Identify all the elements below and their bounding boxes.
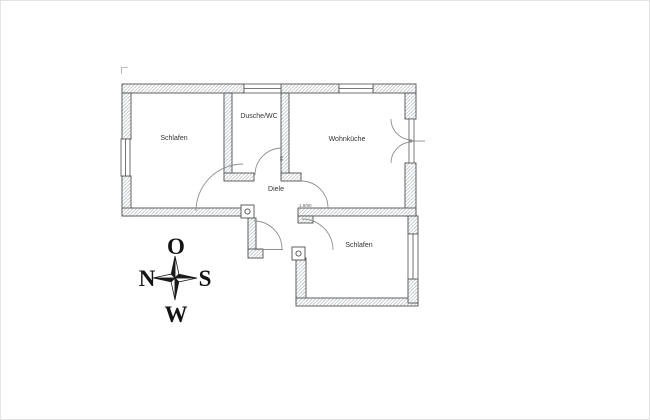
window-left [121, 139, 130, 176]
wall-middle-horizontal [298, 208, 416, 216]
compass-letter-east: O [167, 234, 185, 259]
room-label-hallway: Diele [268, 186, 284, 193]
wall-top-right [373, 84, 416, 93]
compass-letter-south: S [199, 266, 212, 291]
hinge-symbol-bedroom2 [292, 247, 305, 260]
floor-plan-page: 1.9/90 90 Schlafen Dusche/WC Wohnküche D… [0, 0, 650, 420]
door-arc-entrance [254, 221, 282, 249]
corner-tick-mark [122, 68, 129, 75]
wall-bedroom2-left [296, 258, 306, 302]
room-label-shower-wc: Dusche/WC [240, 113, 277, 120]
wall-bedroom1-bottom [122, 208, 249, 216]
wall-bedroom2-right-upper [408, 216, 418, 234]
wall-shower-bottom-right-stub [281, 173, 301, 181]
door-arc-bedroom2 [302, 219, 333, 250]
dimension-label-horizontal: 1.9/90 [299, 203, 312, 208]
wall-shower-left [224, 93, 232, 174]
wall-top-middle [281, 84, 339, 93]
wall-bedroom2-right-lower [408, 279, 418, 303]
door-arc-shower-wc [255, 148, 282, 175]
window-bedroom2-right [408, 234, 418, 279]
compass-letter-north: N [139, 266, 156, 291]
floor-plan-drawing: 1.9/90 90 Schlafen Dusche/WC Wohnküche D… [1, 1, 650, 420]
compass-star-icon [153, 256, 197, 300]
hinge-symbol-entrance [241, 205, 254, 218]
wall-right-upper [405, 93, 416, 119]
compass-rose: O N S W [139, 234, 212, 327]
compass-letter-west: W [165, 302, 188, 327]
balcony-double-door [391, 119, 425, 163]
window-top-kitchen [339, 84, 373, 93]
room-label-living-kitchen: Wohnküche [329, 136, 366, 143]
wall-top-left [122, 84, 244, 93]
door-arcs [196, 148, 333, 250]
door-arc-bedroom1 [196, 164, 243, 211]
wall-left-upper [122, 93, 131, 139]
room-label-bedroom-1: Schlafen [160, 135, 187, 142]
window-top-shower [244, 84, 281, 93]
wall-shower-bottom-left-stub [224, 173, 254, 181]
wall-vestibule-bottom [248, 249, 263, 258]
wall-vestibule-left [248, 218, 256, 251]
room-label-bedroom-2: Schlafen [345, 242, 372, 249]
dimension-label-vertical: 90 [279, 155, 284, 161]
wall-bedroom2-bottom [296, 298, 418, 306]
